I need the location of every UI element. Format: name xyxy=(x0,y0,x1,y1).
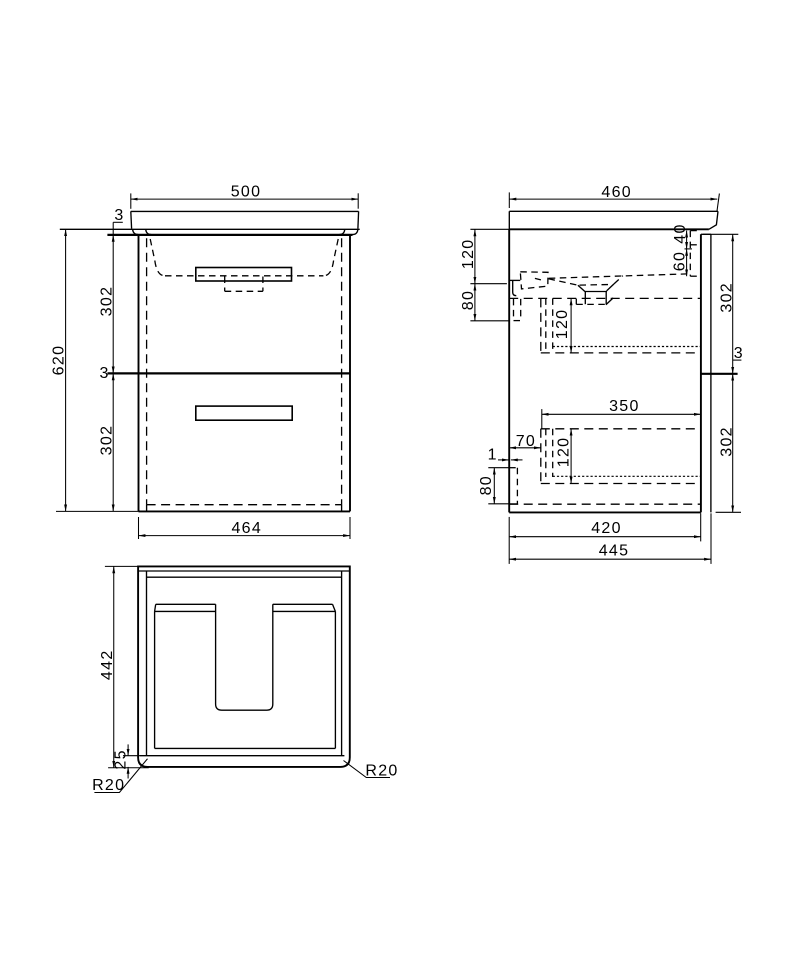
svg-text:302: 302 xyxy=(718,426,735,457)
svg-text:620: 620 xyxy=(51,345,68,376)
svg-text:70: 70 xyxy=(516,433,536,450)
svg-text:302: 302 xyxy=(718,282,735,313)
svg-text:1: 1 xyxy=(488,446,498,463)
svg-text:3: 3 xyxy=(99,365,109,382)
svg-text:25: 25 xyxy=(112,749,129,769)
svg-text:40: 40 xyxy=(672,223,689,243)
svg-text:460: 460 xyxy=(601,184,632,201)
svg-text:3: 3 xyxy=(734,345,744,362)
svg-text:R20: R20 xyxy=(92,777,125,794)
svg-text:60: 60 xyxy=(672,251,689,271)
svg-text:302: 302 xyxy=(99,286,116,317)
svg-text:442: 442 xyxy=(99,649,116,680)
svg-text:80: 80 xyxy=(460,290,477,310)
svg-text:445: 445 xyxy=(599,543,630,560)
svg-text:80: 80 xyxy=(478,475,495,495)
svg-text:350: 350 xyxy=(609,398,640,415)
svg-text:500: 500 xyxy=(231,184,262,201)
svg-text:120: 120 xyxy=(460,238,477,269)
svg-text:120: 120 xyxy=(556,437,573,468)
svg-text:120: 120 xyxy=(554,309,571,340)
svg-text:420: 420 xyxy=(591,520,622,537)
svg-text:302: 302 xyxy=(99,425,116,456)
svg-text:R20: R20 xyxy=(365,763,398,780)
svg-text:464: 464 xyxy=(231,520,262,537)
svg-text:3: 3 xyxy=(114,207,124,224)
